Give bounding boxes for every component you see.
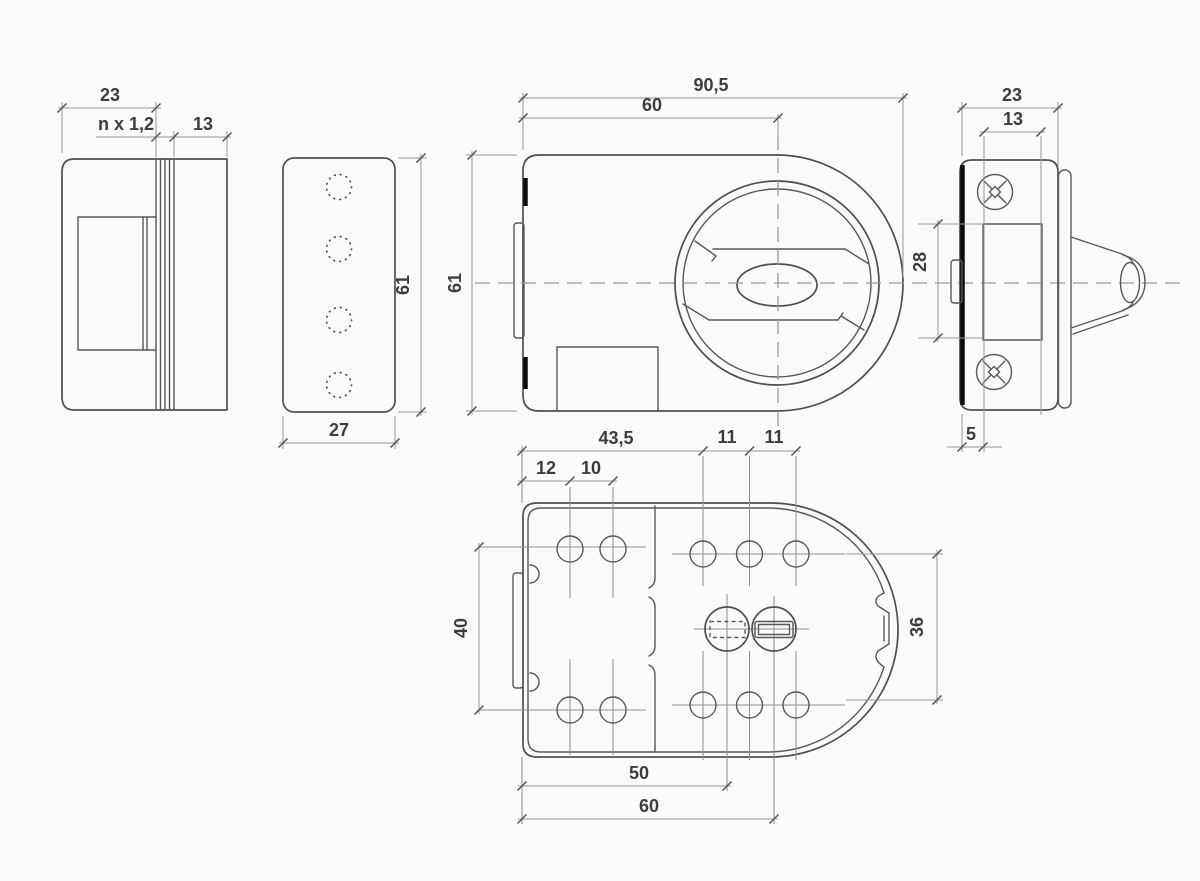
- body-edge-strip: [1059, 170, 1072, 408]
- phillips-screw-icon-bottom: [977, 355, 1012, 390]
- case-divider-line: [649, 506, 655, 752]
- dim-label-latch-height: 28: [910, 252, 930, 272]
- drawing-canvas: 23 n x 1,2 13 61: [0, 0, 1200, 881]
- dim-label-pitch-left-1: 12: [536, 458, 556, 478]
- latch-opening: [983, 224, 1042, 340]
- dim-label-plate-width: 27: [329, 420, 349, 440]
- left-wall-notch-top: [530, 565, 539, 583]
- knob-profile: [1071, 237, 1145, 334]
- left-side-view: 23 n x 1,2 13: [58, 85, 232, 410]
- phillips-screw-icon-top: [978, 175, 1013, 210]
- dimension-plate-offset-5: 5: [947, 414, 1002, 452]
- dim-label-knob-center: 60: [639, 796, 659, 816]
- dim-label-faceplate-depth: 23: [1002, 85, 1022, 105]
- dim-label-latch-width: 13: [1003, 109, 1023, 129]
- dim-label-rear-plate: 13: [193, 114, 213, 134]
- rear-right-notch-detail: [876, 593, 889, 667]
- dimension-plate-height-61: 61: [393, 154, 427, 417]
- dimension-curve-height-36: 36: [846, 550, 943, 705]
- strike-plate-outline: [283, 158, 395, 412]
- shim-stack-lines: [156, 159, 174, 410]
- dim-label-body-height: 61: [445, 273, 465, 293]
- dim-label-plate-height: 61: [393, 275, 413, 295]
- rear-edge-bracket: [513, 573, 523, 688]
- dimension-knob-center-60: 60: [518, 796, 779, 824]
- thumb-turn-wings: [683, 241, 869, 330]
- dim-label-pitch-right-1: 11: [717, 427, 736, 447]
- dimension-spindle-center-50: 50: [518, 763, 732, 791]
- hidden-hole-circles: [327, 175, 352, 398]
- dim-label-hole-field: 43,5: [598, 428, 633, 448]
- case-recess: [78, 217, 156, 350]
- left-wall-notch-bottom: [530, 673, 539, 691]
- dim-label-pitch-right-2: 11: [764, 427, 783, 447]
- dim-label-overall-width: 90,5: [693, 75, 728, 95]
- dim-label-pitch-left-2: 10: [581, 458, 601, 478]
- dim-label-shim-stack: n x 1,2: [98, 114, 154, 134]
- dimension-overall-width-90-5: 90,5: [519, 75, 908, 278]
- technical-drawing-sheet: 23 n x 1,2 13 61: [0, 0, 1200, 881]
- dim-label-curve-height: 36: [907, 617, 927, 637]
- thumb-turn-ellipse: [737, 264, 817, 306]
- dim-label-plate-offset: 5: [966, 424, 976, 444]
- dimension-shims-and-plate: n x 1,2 13: [96, 114, 232, 157]
- dimension-plate-width-27: 27: [279, 416, 400, 449]
- rear-view: 43,5 11 11 12 10 40 36: [451, 427, 943, 824]
- dimension-row-second: 12 10: [518, 458, 618, 486]
- dimension-row-top: 43,5 11 11: [518, 427, 801, 456]
- dimension-row-spacing-40: 40: [451, 543, 484, 715]
- front-view: 90,5 60 61: [445, 75, 1185, 437]
- strike-plate-view: 61 27: [279, 154, 428, 450]
- label-plate-recess: [557, 347, 658, 411]
- dim-label-knob-offset: 60: [642, 95, 662, 115]
- dim-label-spindle-center: 50: [629, 763, 649, 783]
- dimension-knob-offset-60: 60: [519, 95, 783, 123]
- dim-label-depth: 23: [100, 85, 120, 105]
- dimension-latch-height-28: 28: [910, 220, 982, 343]
- dim-label-row-spacing: 40: [451, 618, 471, 638]
- lock-body-side-outline: [62, 159, 227, 410]
- right-side-view: 23 13 28 5: [910, 85, 1145, 452]
- faceplate-outline: [960, 160, 1058, 410]
